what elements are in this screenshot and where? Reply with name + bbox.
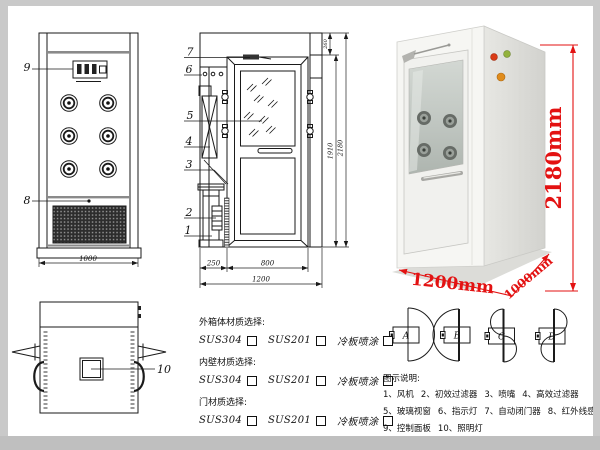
legend-item: 9、控制面板 xyxy=(383,422,431,434)
top-view-drawing xyxy=(12,302,166,413)
material-option-label: SUS201 xyxy=(268,375,311,386)
material-section-title: 内壁材质选择: xyxy=(199,355,391,368)
spec-sheet: 9 8 1000 xyxy=(0,0,600,450)
cabinet-side xyxy=(484,26,545,266)
material-option-label: SUS201 xyxy=(268,415,311,426)
photo-dim-height: 2180mm xyxy=(541,107,566,210)
door-type-a-label: A xyxy=(402,332,410,342)
material-option-label: SUS201 xyxy=(268,335,311,346)
page-frame-top xyxy=(0,0,600,6)
nozzles-front xyxy=(61,95,117,178)
checkbox-outer-coldplate[interactable] xyxy=(383,336,393,346)
dim-front-width: 1000 xyxy=(79,255,97,263)
glass-window xyxy=(241,71,296,146)
dim-door-width: 800 xyxy=(261,260,275,268)
checkbox-door-sus304[interactable] xyxy=(247,416,257,426)
legend-item: 2、初效过滤器 xyxy=(421,388,477,400)
air-return-grille xyxy=(53,206,126,243)
legend-item: 3、喷嘴 xyxy=(484,388,515,400)
material-selection: 外箱体材质选择: SUS304 SUS201 冷板喷涂 内壁材质选择: SUS3… xyxy=(199,315,391,435)
checkbox-inner-sus304[interactable] xyxy=(247,376,257,386)
material-option-label: 冷板喷涂 xyxy=(337,413,378,428)
front-view-drawing xyxy=(32,33,141,267)
callout-door-closer: 7 xyxy=(187,46,194,59)
door-closer xyxy=(243,55,259,60)
material-options-row: SUS304 SUS201 冷板喷涂 xyxy=(199,333,391,348)
material-section-inner-wall: 内壁材质选择: SUS304 SUS201 冷板喷涂 xyxy=(199,355,391,388)
callout-nozzle: 3 xyxy=(186,158,193,171)
checkbox-door-sus201[interactable] xyxy=(316,416,326,426)
door-type-d-label: D xyxy=(547,333,555,343)
material-option-label: SUS304 xyxy=(199,375,242,386)
checkbox-inner-sus201[interactable] xyxy=(316,376,326,386)
door-type-a xyxy=(390,308,435,361)
door-swing-right xyxy=(138,346,166,358)
callout-fan: 1 xyxy=(185,224,192,237)
material-options-row: SUS304 SUS201 冷板喷涂 xyxy=(199,413,391,428)
dim-total-width: 1200 xyxy=(252,276,270,284)
page-frame-left xyxy=(0,0,8,450)
material-section-title: 外箱体材质选择: xyxy=(199,315,391,328)
dim-total-height: 2180 xyxy=(337,140,345,158)
material-section-title: 门材质选择: xyxy=(199,395,391,408)
door-type-b-label: B xyxy=(453,332,461,342)
legend-item: 1、风机 xyxy=(383,388,414,400)
legend-title: 图示说明: xyxy=(383,372,598,384)
callout-ceiling-lamp: 10 xyxy=(157,363,171,376)
emergency-button xyxy=(497,73,505,81)
legend-item: 4、高效过滤器 xyxy=(522,388,578,400)
door-type-diagrams xyxy=(390,308,568,362)
page-frame-right xyxy=(593,0,600,450)
page-frame-bottom xyxy=(0,436,600,450)
material-section-door: 门材质选择: SUS304 SUS201 冷板喷涂 xyxy=(199,395,391,428)
material-option-label: 冷板喷涂 xyxy=(337,333,378,348)
callout-glass-window: 5 xyxy=(187,109,194,122)
dim-top-section: 260 xyxy=(323,38,329,49)
callout-indicator-lamp: 6 xyxy=(186,63,193,76)
checkbox-outer-sus304[interactable] xyxy=(247,336,257,346)
material-option-label: SUS304 xyxy=(199,335,242,346)
material-section-outer-box: 外箱体材质选择: SUS304 SUS201 冷板喷涂 xyxy=(199,315,391,348)
indicator-light-green xyxy=(504,51,511,58)
dim-door-height: 1910 xyxy=(327,143,335,160)
callout-hepa-filter: 4 xyxy=(185,135,193,148)
indicator-light-red xyxy=(491,54,498,61)
product-photo: 2180mm 1200mm 1000mm xyxy=(392,26,578,302)
parts-legend: 图示说明: 1、风机 2、初效过滤器 3、喷嘴 4、高效过滤器 5、玻璃视窗 6… xyxy=(383,372,598,439)
indicator-lamp-icon xyxy=(203,72,207,76)
checkbox-outer-sus201[interactable] xyxy=(316,336,326,346)
door-type-c-label: C xyxy=(498,333,505,343)
door-swing-left xyxy=(12,346,40,358)
legend-line: 5、玻璃视窗 6、指示灯 7、自动闭门器 8、红外线感应器 xyxy=(383,405,598,417)
side-view-drawing xyxy=(184,33,349,288)
legend-item: 7、自动闭门器 xyxy=(484,405,540,417)
material-options-row: SUS304 SUS201 冷板喷涂 xyxy=(199,373,391,388)
legend-line: 9、控制面板 10、照明灯 xyxy=(383,422,598,434)
legend-item: 5、玻璃视窗 xyxy=(383,405,431,417)
dim-left-section: 250 xyxy=(206,260,221,268)
callout-grille: 8 xyxy=(24,194,31,207)
callout-control-panel: 9 xyxy=(24,61,31,74)
callout-primary-filter: 2 xyxy=(185,206,193,219)
door-handle xyxy=(258,149,292,154)
door-type-b xyxy=(433,309,470,361)
legend-item: 6、指示灯 xyxy=(438,405,477,417)
legend-line: 1、风机 2、初效过滤器 3、喷嘴 4、高效过滤器 xyxy=(383,388,598,400)
legend-item: 10、照明灯 xyxy=(438,422,483,434)
material-option-label: 冷板喷涂 xyxy=(337,373,378,388)
material-option-label: SUS304 xyxy=(199,415,242,426)
